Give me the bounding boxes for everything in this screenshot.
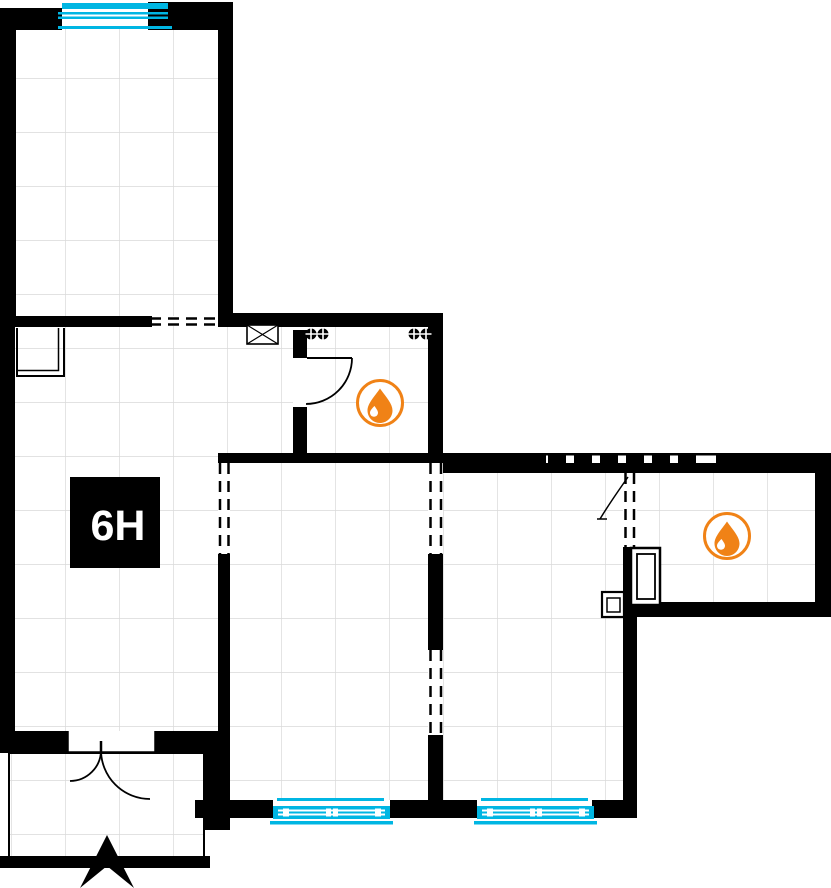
window-icon [270, 798, 393, 825]
window-icon [474, 798, 597, 825]
burner-icon [409, 329, 420, 340]
floor-grid [10, 28, 815, 856]
burner-icon [306, 329, 317, 340]
toothed-wall-marking [543, 453, 720, 463]
burner-icon [421, 329, 432, 340]
water-drop-icon [705, 514, 750, 559]
middle-room-floor [230, 463, 428, 800]
floor-plan: 6H [0, 0, 831, 888]
water-drop-icon [358, 381, 403, 426]
sink-fixture [602, 592, 624, 617]
burner-icon [318, 329, 329, 340]
floor-plan-drawing: 6H [0, 0, 831, 888]
vent-shaft-icon [247, 325, 278, 344]
hall-upper-floor [13, 326, 293, 453]
right-room-floor [443, 473, 623, 800]
unit-label: 6H [70, 477, 160, 568]
boiler-fixture [631, 548, 660, 605]
unit-label-text: 6H [91, 502, 146, 550]
room-top-left-floor [14, 28, 218, 316]
